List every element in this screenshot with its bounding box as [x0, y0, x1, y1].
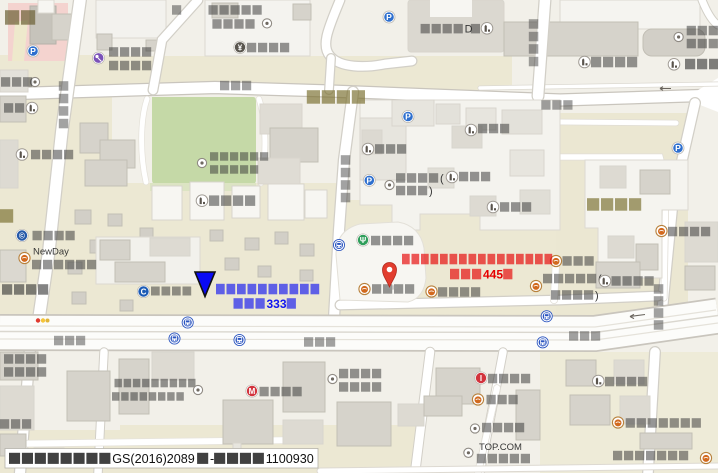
svg-text:©: © — [19, 232, 25, 241]
svg-text:P: P — [675, 143, 681, 153]
svg-text:1100930: 1100930 — [266, 452, 314, 466]
svg-text:(: ( — [440, 173, 444, 185]
svg-text:): ) — [429, 186, 433, 198]
svg-text:333: 333 — [267, 297, 287, 311]
svg-text:M: M — [249, 387, 256, 396]
svg-text:I: I — [480, 374, 482, 383]
svg-text:NewDay: NewDay — [33, 246, 69, 257]
svg-text:Ψ: Ψ — [360, 236, 367, 245]
svg-text:¥: ¥ — [238, 43, 243, 52]
svg-text:P: P — [405, 112, 411, 122]
svg-text:445: 445 — [483, 267, 503, 281]
svg-text:C: C — [141, 288, 147, 297]
svg-text:TOP.COM: TOP.COM — [479, 442, 522, 453]
svg-text:GS(2016)2089: GS(2016)2089 — [112, 452, 195, 466]
svg-text:P: P — [366, 176, 372, 186]
svg-text:P: P — [30, 46, 36, 56]
svg-text:-: - — [210, 452, 214, 466]
svg-text:P: P — [386, 12, 392, 22]
svg-text:): ) — [595, 290, 599, 302]
